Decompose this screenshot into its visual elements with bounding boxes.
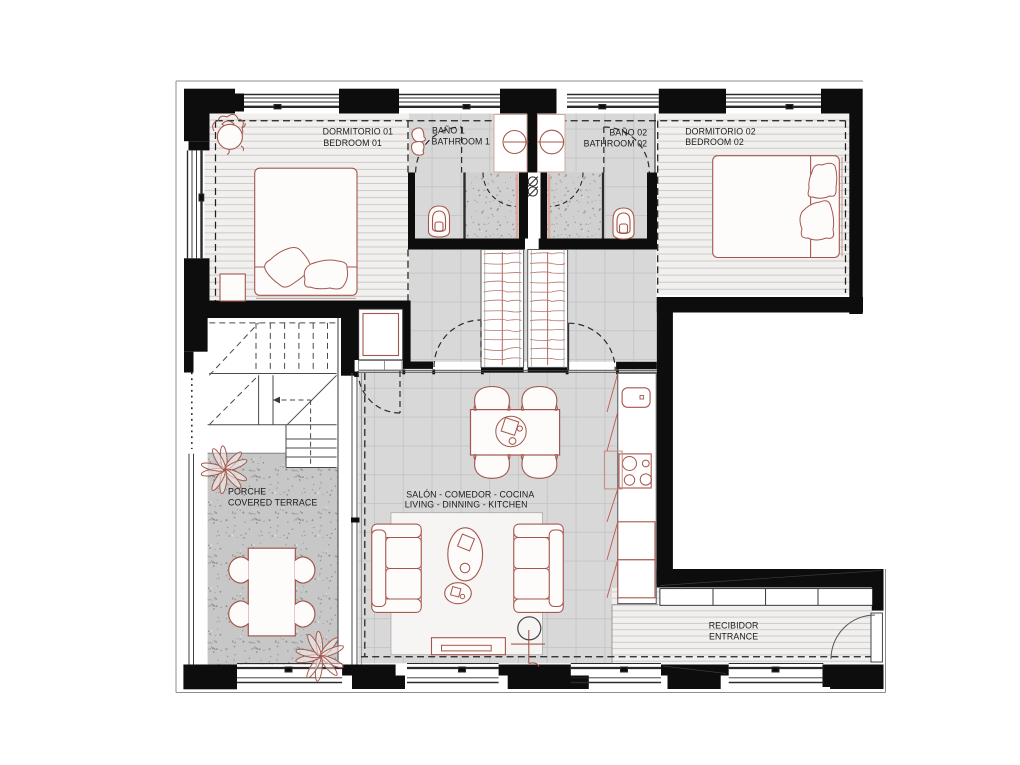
svg-text:SALÓN - COMEDOR - COCINA: SALÓN - COMEDOR - COCINA — [406, 489, 534, 499]
svg-text:BEDROOM 02: BEDROOM 02 — [685, 137, 744, 147]
svg-text:DORMITORIO 02: DORMITORIO 02 — [685, 127, 756, 137]
svg-text:BATHROOM 1: BATHROOM 1 — [432, 137, 491, 147]
svg-text:BATHROOM 02: BATHROOM 02 — [584, 139, 648, 149]
svg-text:RECIBIDOR: RECIBIDOR — [709, 621, 759, 631]
svg-text:DORMITORIO 01: DORMITORIO 01 — [323, 127, 394, 137]
svg-text:BEDROOM 01: BEDROOM 01 — [323, 138, 382, 148]
svg-text:BAÑO 02: BAÑO 02 — [609, 128, 647, 138]
svg-text:PORCHE: PORCHE — [228, 487, 266, 497]
svg-text:BAÑO 1: BAÑO 1 — [432, 126, 465, 136]
svg-text:LIVING - DINNING - KITCHEN: LIVING - DINNING - KITCHEN — [405, 500, 528, 510]
svg-text:ENTRANCE: ENTRANCE — [709, 632, 758, 642]
svg-text:COVERED TERRACE: COVERED TERRACE — [228, 498, 317, 508]
